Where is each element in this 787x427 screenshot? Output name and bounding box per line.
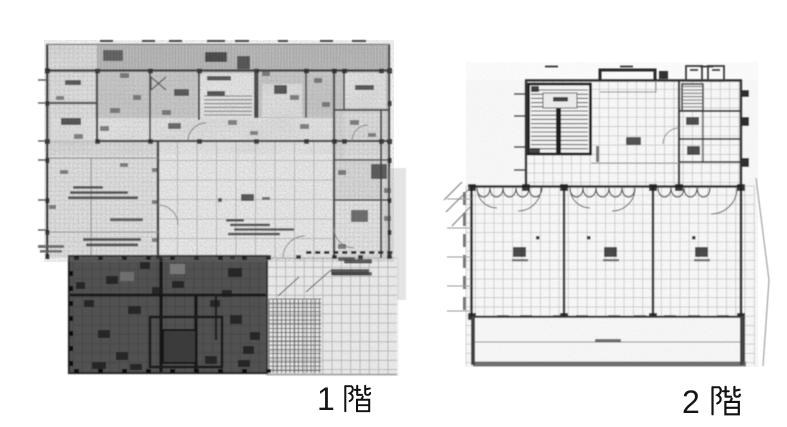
svg-text:1: 1	[317, 381, 335, 417]
svg-text:2: 2	[682, 384, 700, 420]
